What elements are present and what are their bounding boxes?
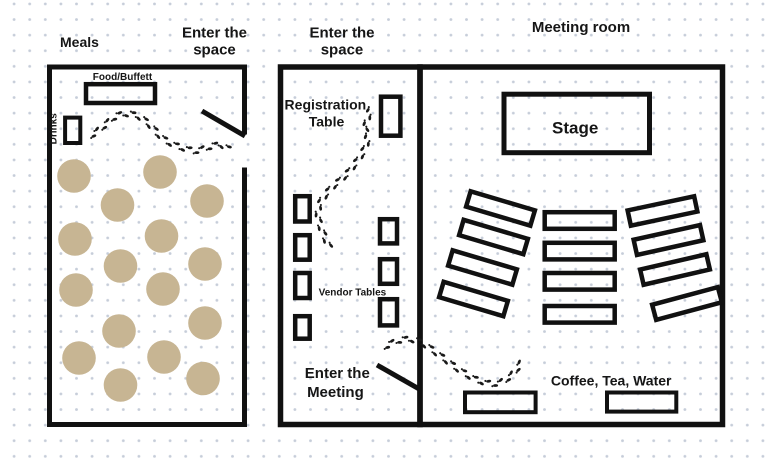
svg-text:Meeting: Meeting [307, 384, 364, 401]
svg-text:Meals: Meals [60, 34, 99, 50]
svg-text:Table: Table [309, 114, 345, 130]
svg-text:space: space [193, 42, 236, 59]
svg-text:Enter the: Enter the [182, 25, 247, 42]
svg-text:Drinks: Drinks [49, 113, 60, 145]
svg-text:Registration: Registration [285, 97, 367, 113]
svg-text:Coffee, Tea, Water: Coffee, Tea, Water [551, 372, 672, 388]
svg-text:Food/Buffett: Food/Buffett [93, 72, 153, 83]
svg-text:Enter the: Enter the [305, 365, 370, 382]
svg-text:Stage: Stage [552, 119, 598, 138]
svg-text:Meeting room: Meeting room [532, 19, 630, 36]
svg-text:Vendor Tables: Vendor Tables [319, 288, 387, 299]
svg-text:Enter the: Enter the [309, 25, 374, 42]
svg-text:space: space [321, 42, 364, 59]
